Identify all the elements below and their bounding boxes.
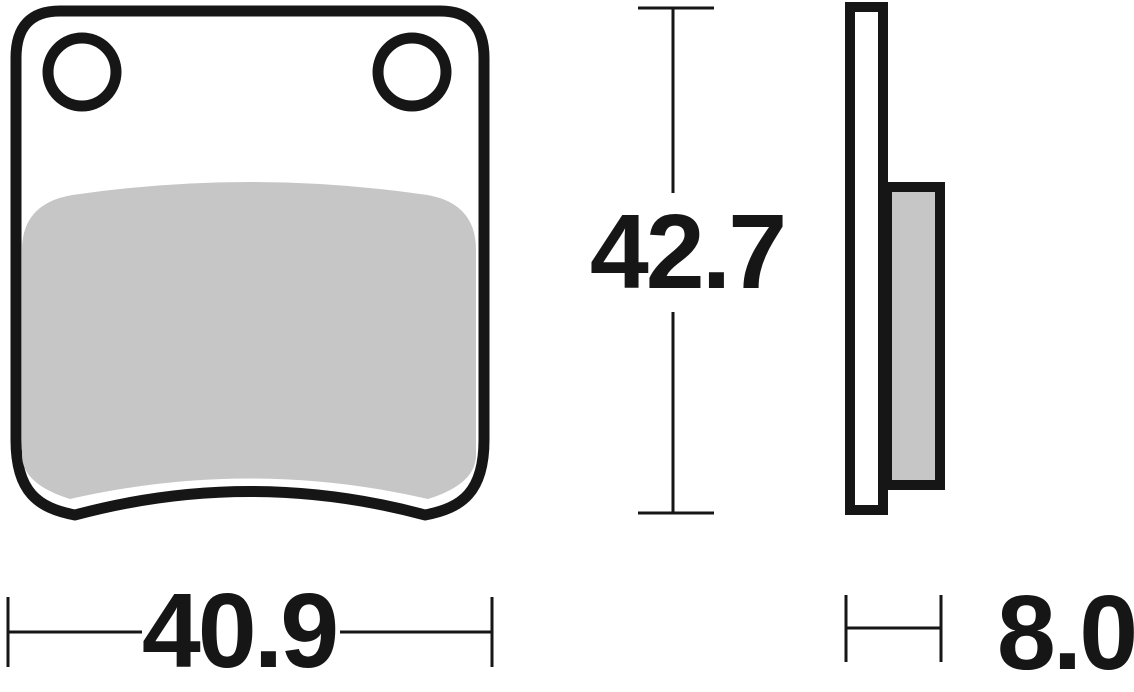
friction-material-side: [887, 187, 940, 485]
friction-material-front: [22, 182, 476, 499]
technical-drawing-canvas: 42.7 40.9 8.0: [0, 0, 1134, 676]
mounting-hole-left: [48, 38, 116, 106]
thickness-dimension: [846, 595, 941, 662]
backing-plate-side: [850, 7, 883, 510]
height-dimension-label: 42.7: [590, 199, 784, 305]
width-dimension-label: 40.9: [142, 578, 336, 684]
side-view: [850, 7, 940, 510]
front-view: [16, 11, 484, 515]
mounting-hole-right: [378, 38, 446, 106]
thickness-dimension-label: 8.0: [997, 580, 1134, 686]
